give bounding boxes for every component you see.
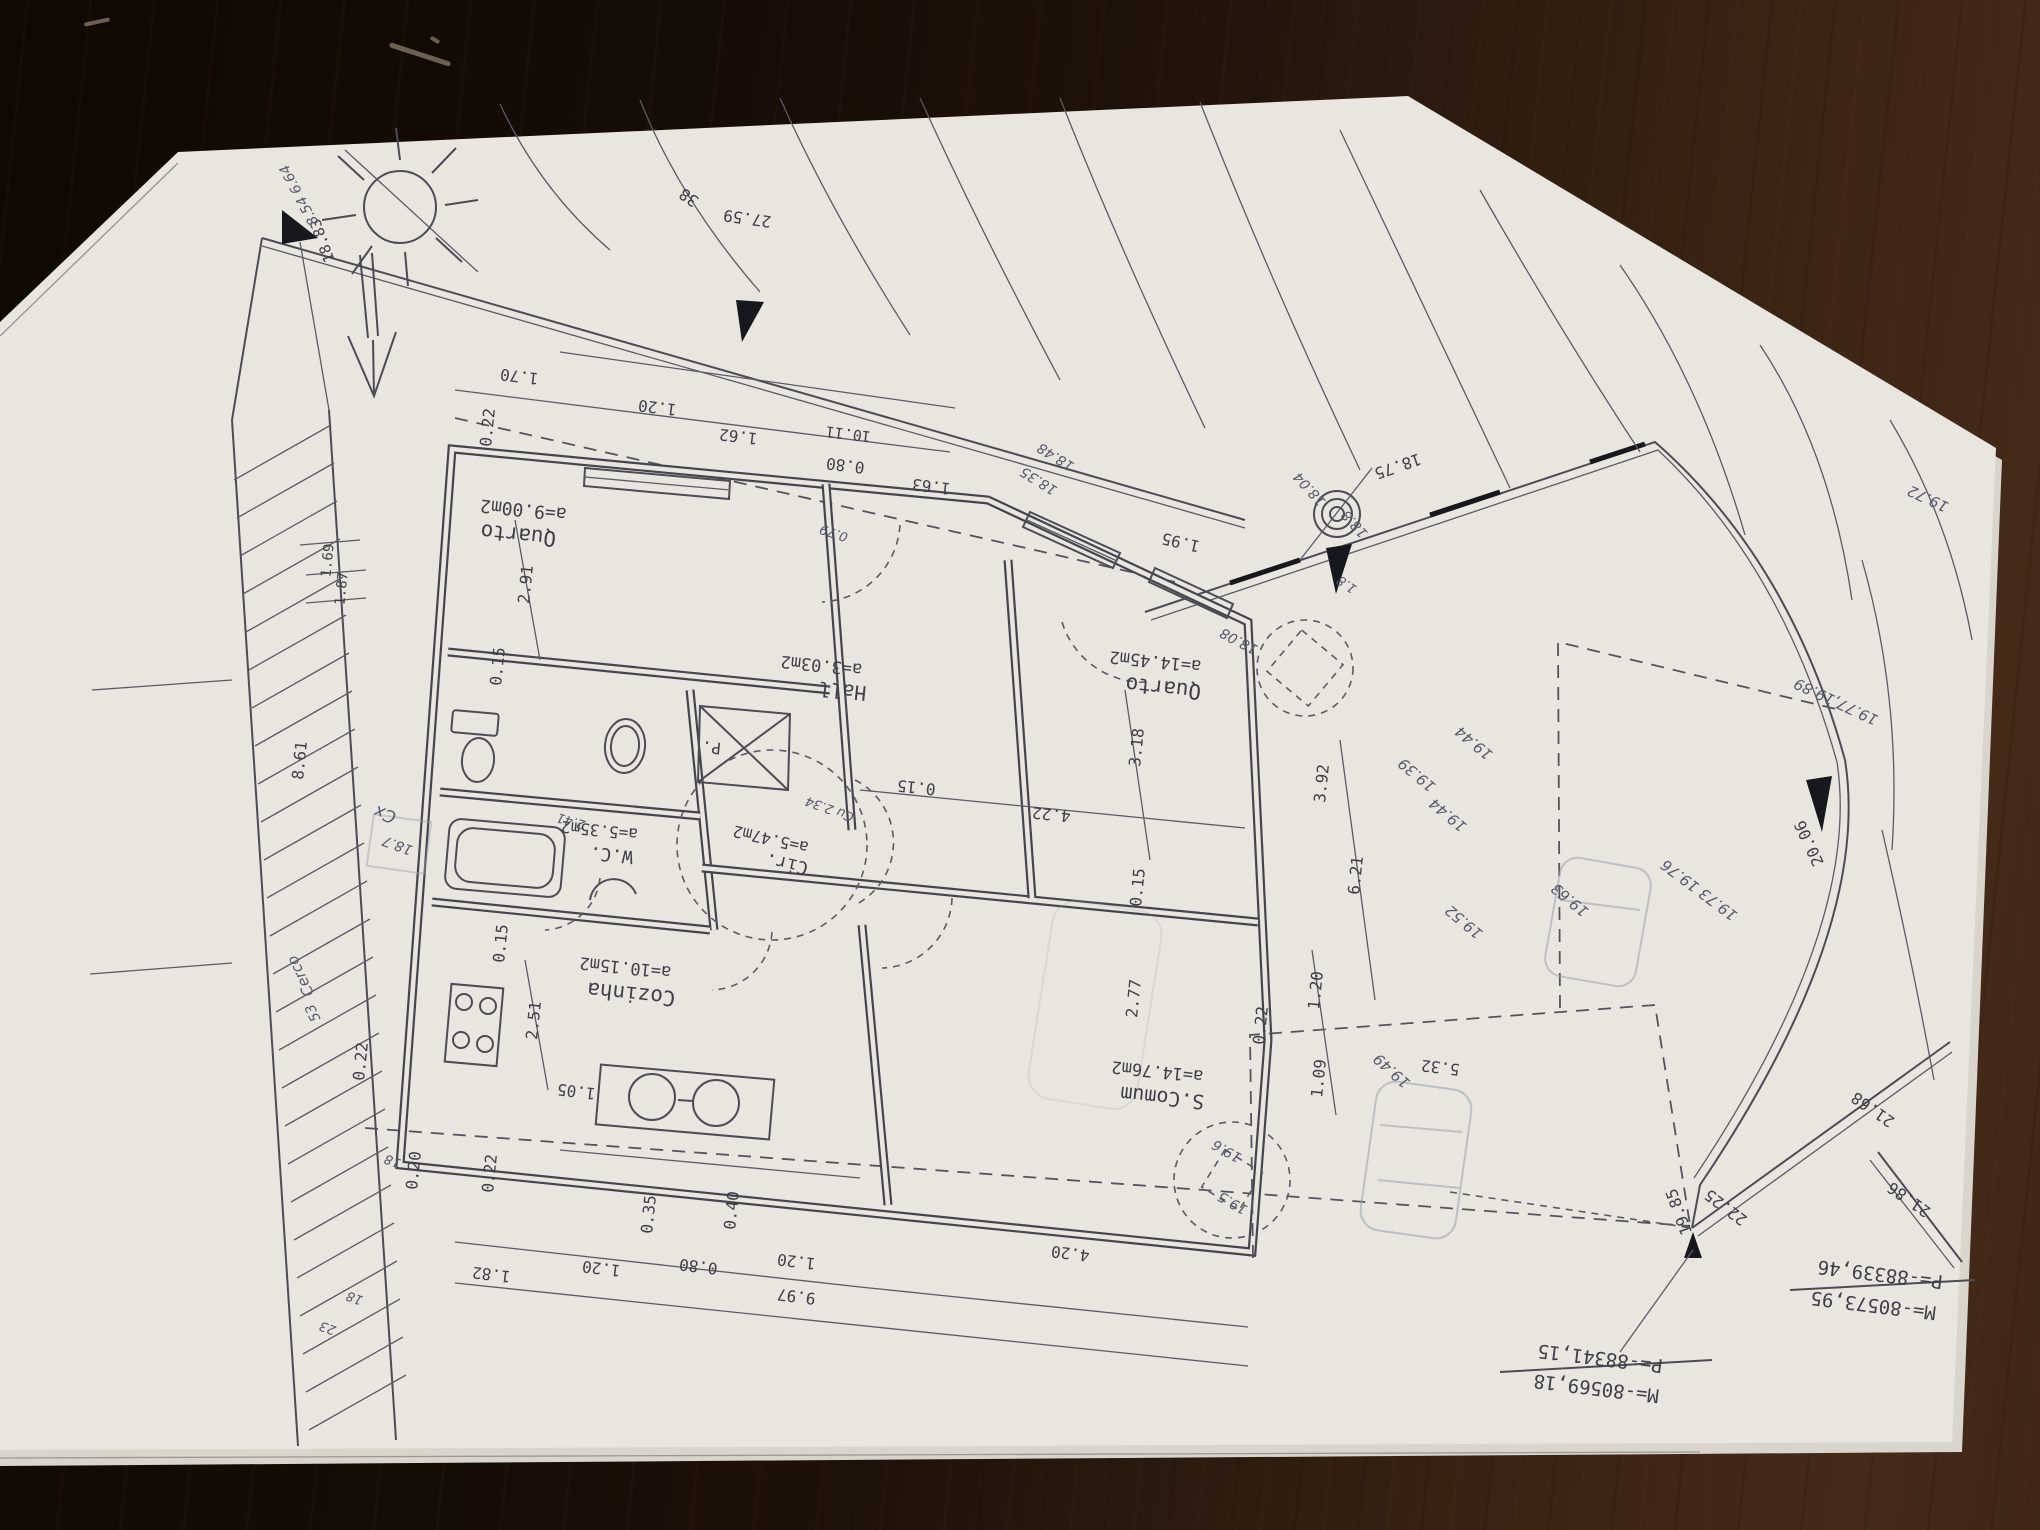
photo-of-floor-plan: a=9.00m2Quartoa=3.03m2Halla=14.45m2Quart… <box>0 0 2040 1530</box>
dimension: 1.09 <box>1307 1058 1330 1098</box>
dimension: 0.15 <box>896 776 936 799</box>
dimension: 0.15 <box>486 646 509 686</box>
dimension: 0.15 <box>1126 867 1149 907</box>
floor-plan-drawing: a=9.00m2Quartoa=3.03m2Halla=14.45m2Quart… <box>0 0 2040 1530</box>
dimension: 2.77 <box>1122 978 1145 1018</box>
dimension: 8.61 <box>288 740 311 780</box>
room-name: Hall <box>817 677 867 706</box>
dimension: 0.22 <box>476 407 499 447</box>
dimension: 0.15 <box>489 923 512 963</box>
dimension: 6.21 <box>1344 855 1367 895</box>
dimension: 0.20 <box>402 1150 425 1190</box>
dimension: 3.92 <box>1310 763 1333 803</box>
room-name: P. <box>701 737 722 758</box>
dimension: 0.22 <box>478 1153 501 1193</box>
dimension: 2.51 <box>522 1000 545 1040</box>
dimension: 3.18 <box>1125 727 1148 767</box>
dimension: 0.22 <box>349 1041 372 1081</box>
paper-sheet-stack <box>0 96 2002 1466</box>
dimension: 0.40 <box>720 1190 743 1230</box>
dimension: 0.35 <box>637 1194 660 1234</box>
dimension: 2.91 <box>514 564 537 604</box>
dimension: 1.20 <box>1304 970 1327 1010</box>
dimension: 0.22 <box>1249 1005 1272 1045</box>
dimension: 4.22 <box>1031 803 1071 826</box>
